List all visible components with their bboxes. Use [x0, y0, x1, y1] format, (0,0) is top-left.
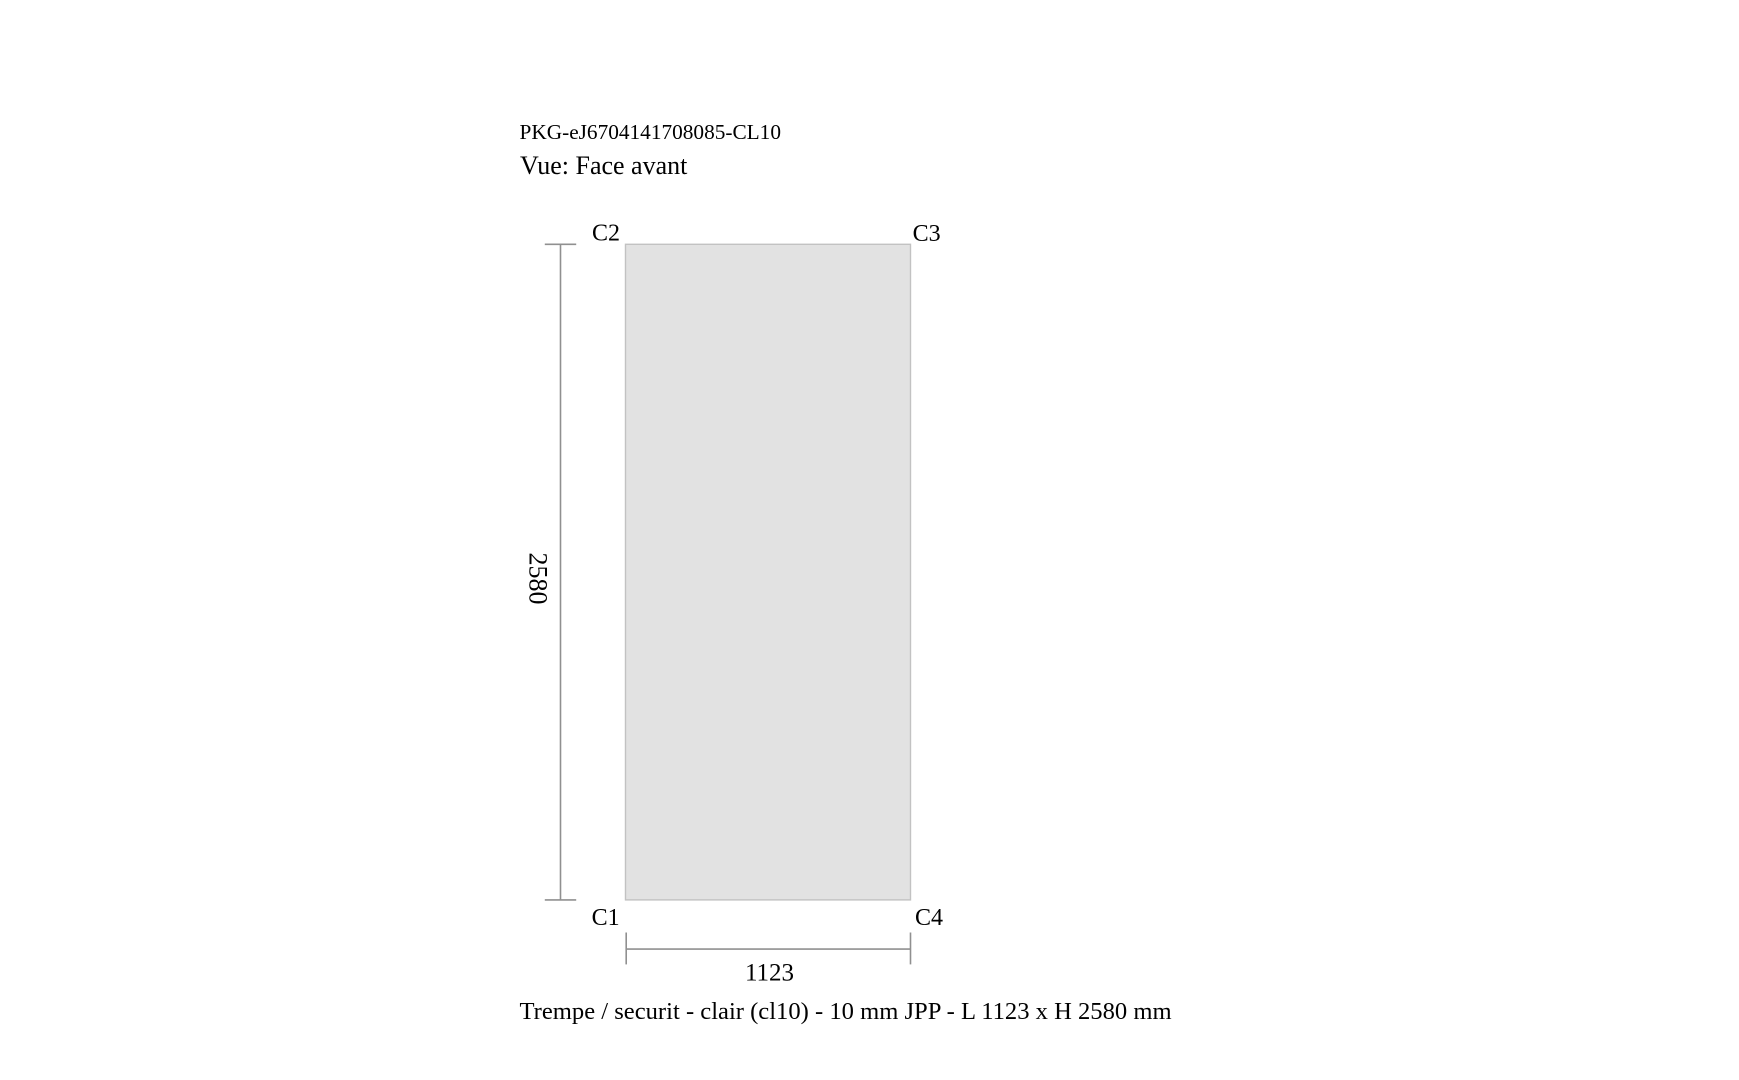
svg-text:2580: 2580	[524, 553, 553, 605]
svg-text:C1: C1	[592, 905, 620, 931]
svg-text:Trempe / securit - clair (cl10: Trempe / securit - clair (cl10) - 10 mm …	[520, 998, 1172, 1025]
svg-text:Vue: Face avant: Vue: Face avant	[520, 151, 688, 180]
svg-text:1123: 1123	[745, 960, 794, 987]
svg-text:C3: C3	[913, 221, 941, 247]
svg-text:PKG-eJ6704141708085-CL10: PKG-eJ6704141708085-CL10	[520, 120, 781, 144]
svg-text:C2: C2	[592, 220, 620, 246]
svg-text:C4: C4	[915, 905, 943, 931]
